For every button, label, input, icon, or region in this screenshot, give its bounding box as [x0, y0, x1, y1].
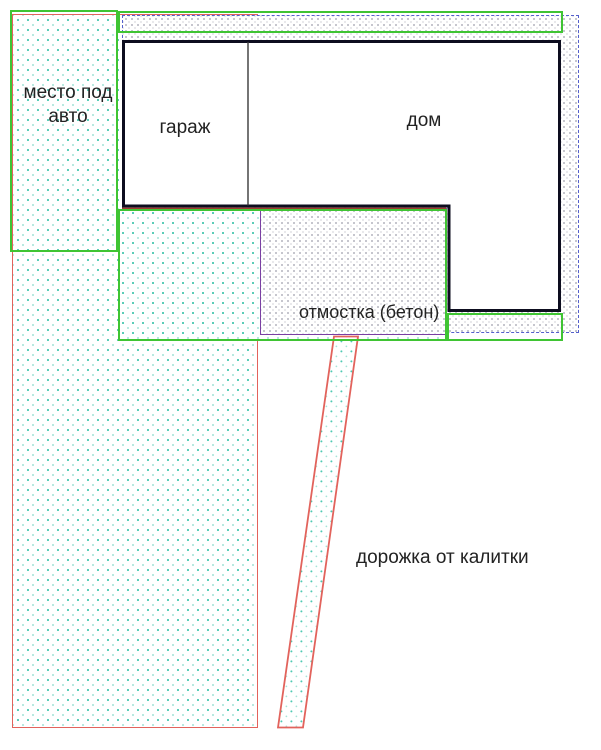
- blind-area-label: отмостка (бетон): [299, 300, 439, 324]
- walkway-label: дорожка от калитки: [356, 546, 529, 570]
- parking-spot-label: место под авто: [14, 81, 122, 129]
- walkway-path-shape: [278, 337, 358, 728]
- parking-spot-box: [10, 10, 118, 252]
- site-plan-canvas: место под авто гараж дом отмостка (бетон…: [0, 0, 601, 750]
- house-label: дом: [364, 109, 484, 133]
- parking-label-line1: место под: [24, 82, 113, 103]
- parking-label-line2: авто: [48, 106, 87, 127]
- garage-label: гараж: [124, 116, 246, 140]
